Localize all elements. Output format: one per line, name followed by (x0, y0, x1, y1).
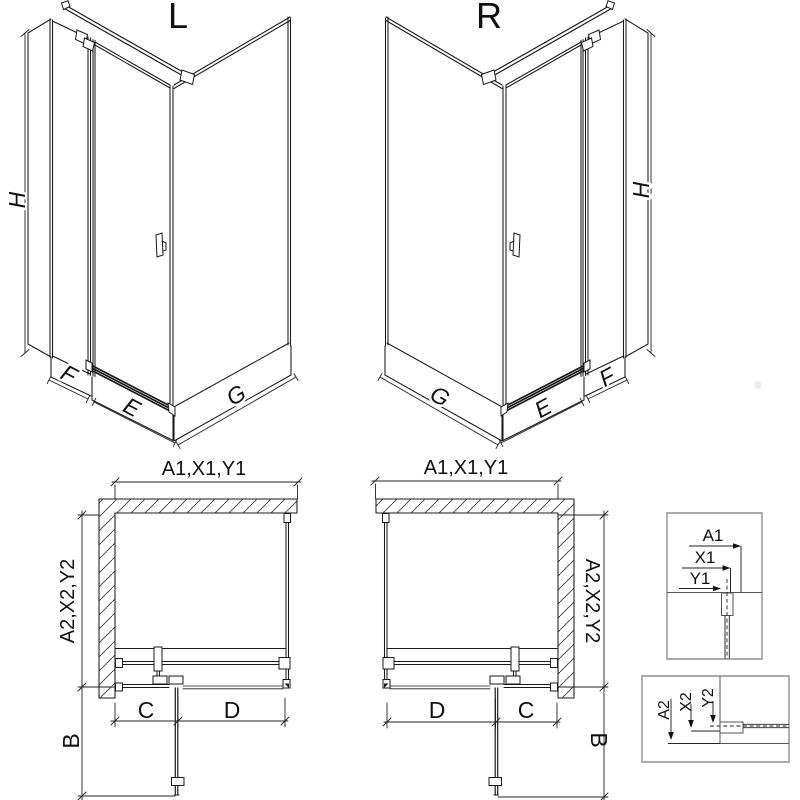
plan-right-door-section-label: D (429, 697, 446, 723)
wall-hatch-right (376, 499, 574, 698)
shower-enclosure-technical-drawing: L H F E G R H F E G (0, 0, 800, 800)
plan-view-right: A1,X1,Y1 A2,X2,Y2 B C D (371, 457, 612, 800)
watermark-dot (754, 381, 762, 389)
detail-width-profile-label: X1 (695, 548, 716, 567)
plan-left-width-label: A1,X1,Y1 (162, 458, 247, 480)
detail-width-wall-label: A1 (703, 526, 724, 545)
dim-label-fixed-left: F (57, 359, 83, 389)
detail-width-glass-label: Y1 (690, 569, 711, 588)
plan-left-fixed-section-label: C (138, 697, 155, 723)
dim-label-fixed-right: F (595, 361, 621, 391)
plan-right-depth-label: A2,X2,Y2 (581, 559, 603, 644)
technical-drawing-canvas: L H F E G R H F E G (0, 0, 800, 800)
detail-box-width: A1 X1 Y1 (667, 513, 762, 659)
plan-left-door-swing-label: B (58, 733, 84, 748)
plan-left-depth-label: A2,X2,Y2 (57, 559, 79, 644)
detail-depth-wall-label: A2 (656, 700, 673, 720)
variant-label-right: R (476, 0, 502, 36)
plan-right-door-swing-label: B (586, 732, 612, 747)
plan-left-door-section-label: D (224, 697, 241, 723)
plan-view-left: A1,X1,Y1 A2,X2,Y2 B C D (57, 458, 302, 800)
variant-label-left: L (168, 0, 188, 36)
detail-box-depth: A2 X2 Y2 (642, 676, 789, 762)
plan-left-geometry (99, 499, 297, 795)
dim-label-door-left: E (119, 392, 145, 422)
iso-view-left: L H F E G (4, 0, 298, 449)
detail-depth-profile-label: X2 (678, 692, 695, 712)
dim-label-height-left: H (4, 191, 30, 208)
dim-label-door-right: E (530, 393, 556, 423)
detail-depth-glass-label: Y2 (700, 688, 717, 708)
iso-view-right: R H F E G (378, 0, 655, 449)
plan-right-width-label: A1,X1,Y1 (424, 457, 509, 479)
dim-label-height-right: H (628, 181, 654, 198)
plan-right-fixed-section-label: C (518, 697, 535, 723)
plan-right-geometry (376, 499, 574, 795)
wall-hatch-left (99, 499, 297, 698)
dim-label-side-right: G (426, 380, 454, 411)
